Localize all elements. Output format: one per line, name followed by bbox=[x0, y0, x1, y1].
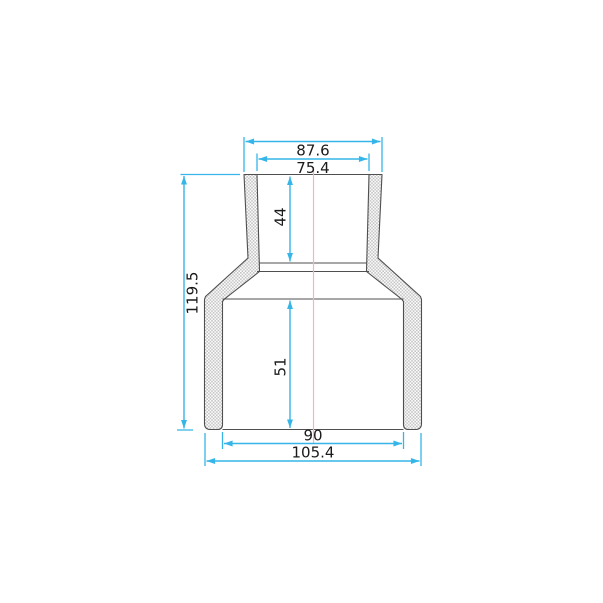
dim-bottom-socket-depth-label: 51 bbox=[272, 357, 290, 376]
dim-bottom-inner-width-label: 90 bbox=[303, 427, 322, 445]
dim-top-inner-width-label: 75.4 bbox=[296, 159, 329, 177]
dim-bottom-outer-width-label: 105.4 bbox=[292, 444, 335, 462]
reducer-section-drawing: 87.6 75.4 44 119.5 51 90 bbox=[0, 0, 603, 603]
dim-overall-height-label: 119.5 bbox=[184, 272, 202, 315]
right-wall-section bbox=[367, 175, 422, 430]
left-wall-section bbox=[205, 175, 260, 430]
dim-top-outer-width-label: 87.6 bbox=[296, 142, 329, 160]
dim-top-socket-depth: 44 bbox=[272, 177, 291, 262]
dim-top-socket-depth-label: 44 bbox=[272, 207, 290, 226]
dim-bottom-socket-depth: 51 bbox=[272, 301, 291, 429]
drawing-canvas: 87.6 75.4 44 119.5 51 90 bbox=[0, 0, 603, 603]
